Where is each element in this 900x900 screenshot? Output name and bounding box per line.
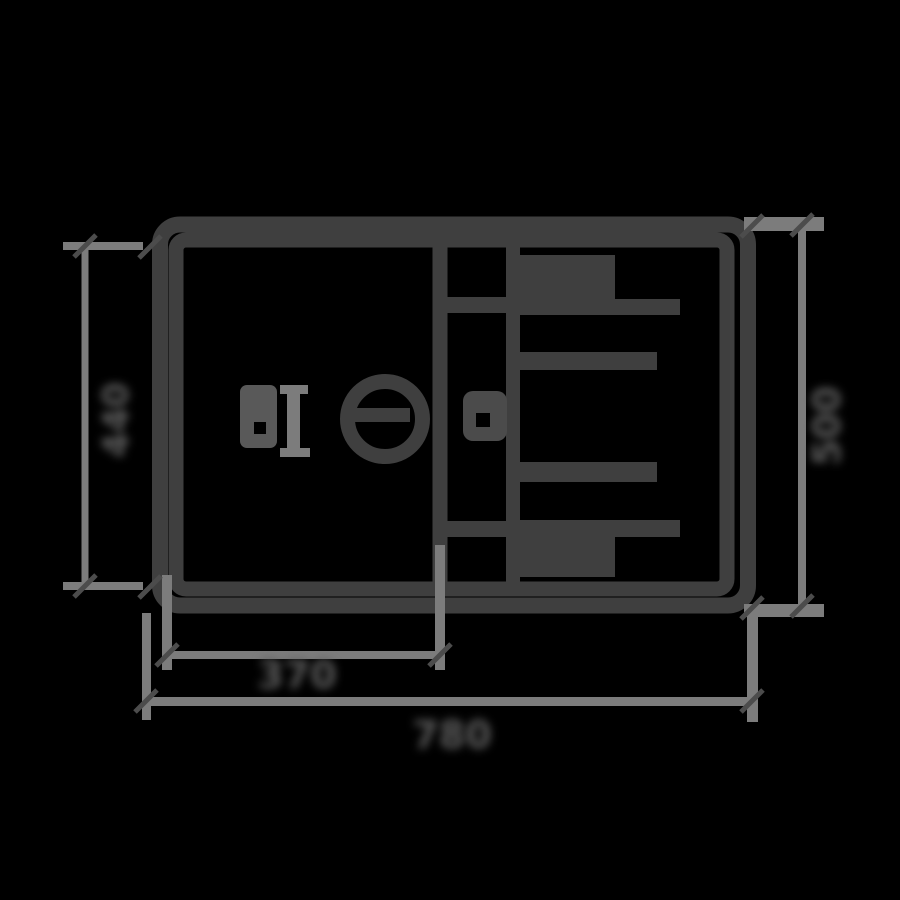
overall-dim-line	[142, 697, 757, 706]
drainer-group	[520, 255, 680, 577]
left-dim-tick-bottom	[63, 582, 143, 590]
diagram-canvas: 440 500 370 780	[0, 0, 900, 900]
drainer-groove-4	[520, 520, 680, 537]
left-dim-tick-top	[63, 242, 143, 250]
main-bowl-fittings	[240, 382, 423, 458]
bowl-width-label: 370	[257, 653, 336, 697]
bowl-depth-label: 440	[96, 382, 137, 457]
overflow-bracket-icon	[280, 385, 310, 457]
drainer-groove-2	[520, 352, 657, 370]
main-bowl-drain-overflow-bar	[352, 408, 410, 422]
drainer-groove-1	[520, 299, 680, 315]
sink-dimension-diagram: 440 500 370 780	[0, 0, 900, 900]
drainer-block-bottom	[520, 536, 615, 577]
waste-square-icon	[240, 385, 277, 448]
half-bowl-bottom-bar	[447, 521, 507, 537]
left-dim-line	[82, 243, 89, 590]
overall-width-label: 780	[412, 713, 491, 757]
drainer-groove-3	[520, 462, 657, 482]
half-bowl-drain-hole	[476, 413, 490, 427]
half-bowl-top-bar	[447, 297, 507, 313]
half-bowl-group	[447, 297, 507, 537]
waste-square-hole	[254, 422, 266, 434]
overall-depth-label: 500	[805, 386, 849, 465]
